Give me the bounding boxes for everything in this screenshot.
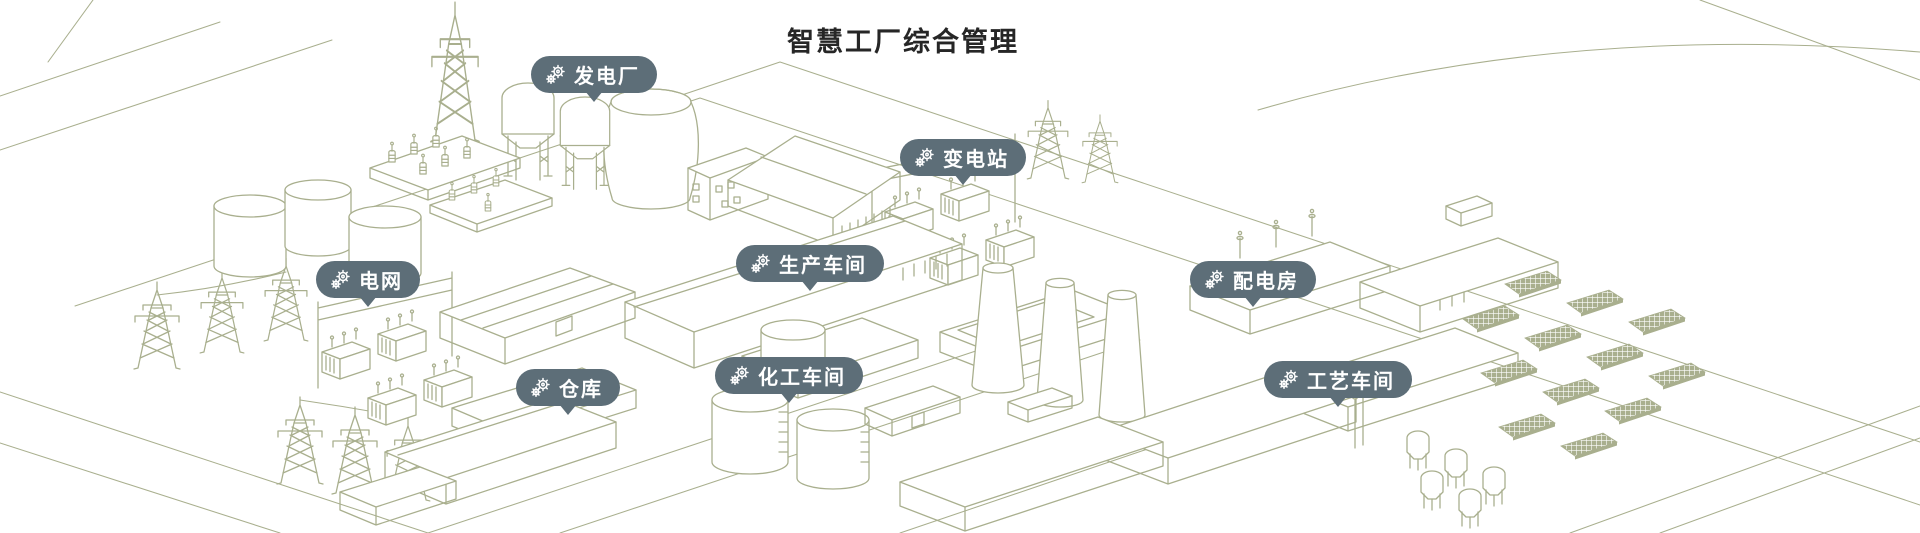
chimneys-illustration <box>940 263 1145 422</box>
badge-label: 变电站 <box>943 143 1009 172</box>
badge-label: 工艺车间 <box>1307 365 1395 394</box>
badge-label: 化工车间 <box>758 361 846 390</box>
gears-icon <box>1203 269 1225 291</box>
gears-icon <box>913 147 935 169</box>
label-badge-power-grid[interactable]: 电网 <box>316 261 420 298</box>
process-vessels-illustration <box>1352 390 1505 528</box>
gears-icon <box>329 269 351 291</box>
smart-factory-dashboard: 智慧工厂综合管理 发电厂 变电站 电网 生产车间 配电房 仓库 化工车间 工艺车… <box>0 0 1920 533</box>
badge-label: 生产车间 <box>779 249 867 278</box>
gears-icon <box>544 64 566 86</box>
label-badge-substation[interactable]: 变电站 <box>900 139 1026 176</box>
label-badge-chemical-workshop[interactable]: 化工车间 <box>715 357 863 394</box>
badge-label: 仓库 <box>559 373 603 402</box>
chemical-tanks-illustration <box>712 318 960 489</box>
gears-icon <box>529 377 551 399</box>
gears-icon <box>728 365 750 387</box>
solar-panels-illustration <box>1463 271 1705 460</box>
label-badge-process-workshop[interactable]: 工艺车间 <box>1264 361 1412 398</box>
label-badge-power-plant[interactable]: 发电厂 <box>531 56 657 93</box>
badge-label: 电网 <box>359 265 403 294</box>
gears-icon <box>1277 369 1299 391</box>
label-badge-distribution-room[interactable]: 配电房 <box>1190 261 1316 298</box>
sawtooth-factory-illustration <box>440 268 635 364</box>
factory-illustration <box>0 0 1920 533</box>
page-title: 智慧工厂综合管理 <box>787 20 1019 59</box>
label-badge-production-workshop[interactable]: 生产车间 <box>736 245 884 282</box>
badge-label: 配电房 <box>1233 265 1299 294</box>
gears-icon <box>749 253 771 275</box>
label-badge-warehouse[interactable]: 仓库 <box>516 369 620 406</box>
badge-label: 发电厂 <box>574 60 640 89</box>
